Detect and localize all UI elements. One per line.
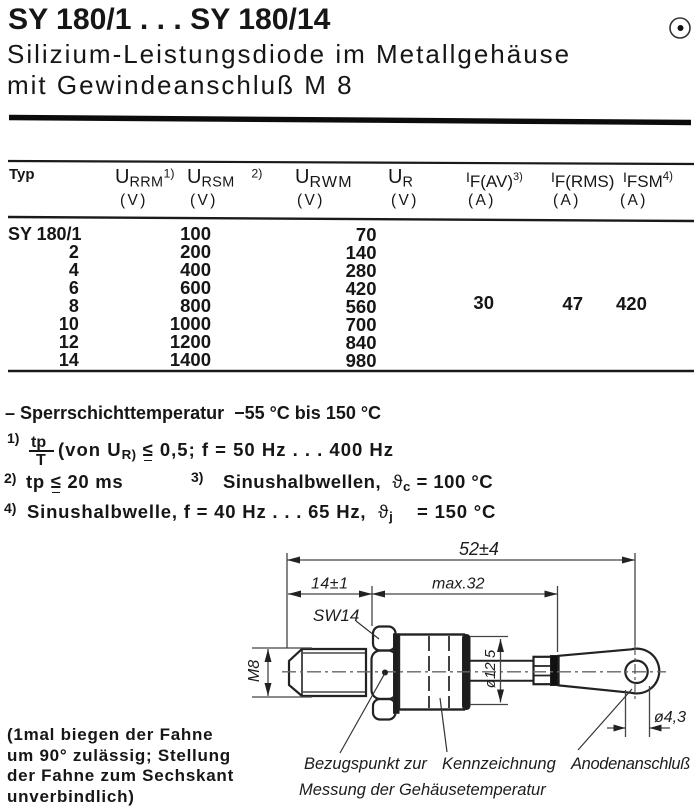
svg-text:Kennzeichnung: Kennzeichnung <box>442 755 557 773</box>
svg-text:Messung der Gehäusetemperatur: Messung der Gehäusetemperatur <box>299 781 547 799</box>
svg-text:Anodenanschluß: Anodenanschluß <box>570 755 690 773</box>
svg-text:14±1: 14±1 <box>311 576 348 593</box>
svg-text:52±4: 52±4 <box>459 539 499 559</box>
svg-text:max.32: max.32 <box>432 576 485 593</box>
svg-text:M8: M8 <box>246 660 263 682</box>
svg-text:SW14: SW14 <box>313 606 359 625</box>
svg-text:Bezugspunkt zur: Bezugspunkt zur <box>304 755 428 773</box>
svg-text:ø12,5: ø12,5 <box>482 649 499 688</box>
svg-text:ø4,3: ø4,3 <box>654 709 686 726</box>
